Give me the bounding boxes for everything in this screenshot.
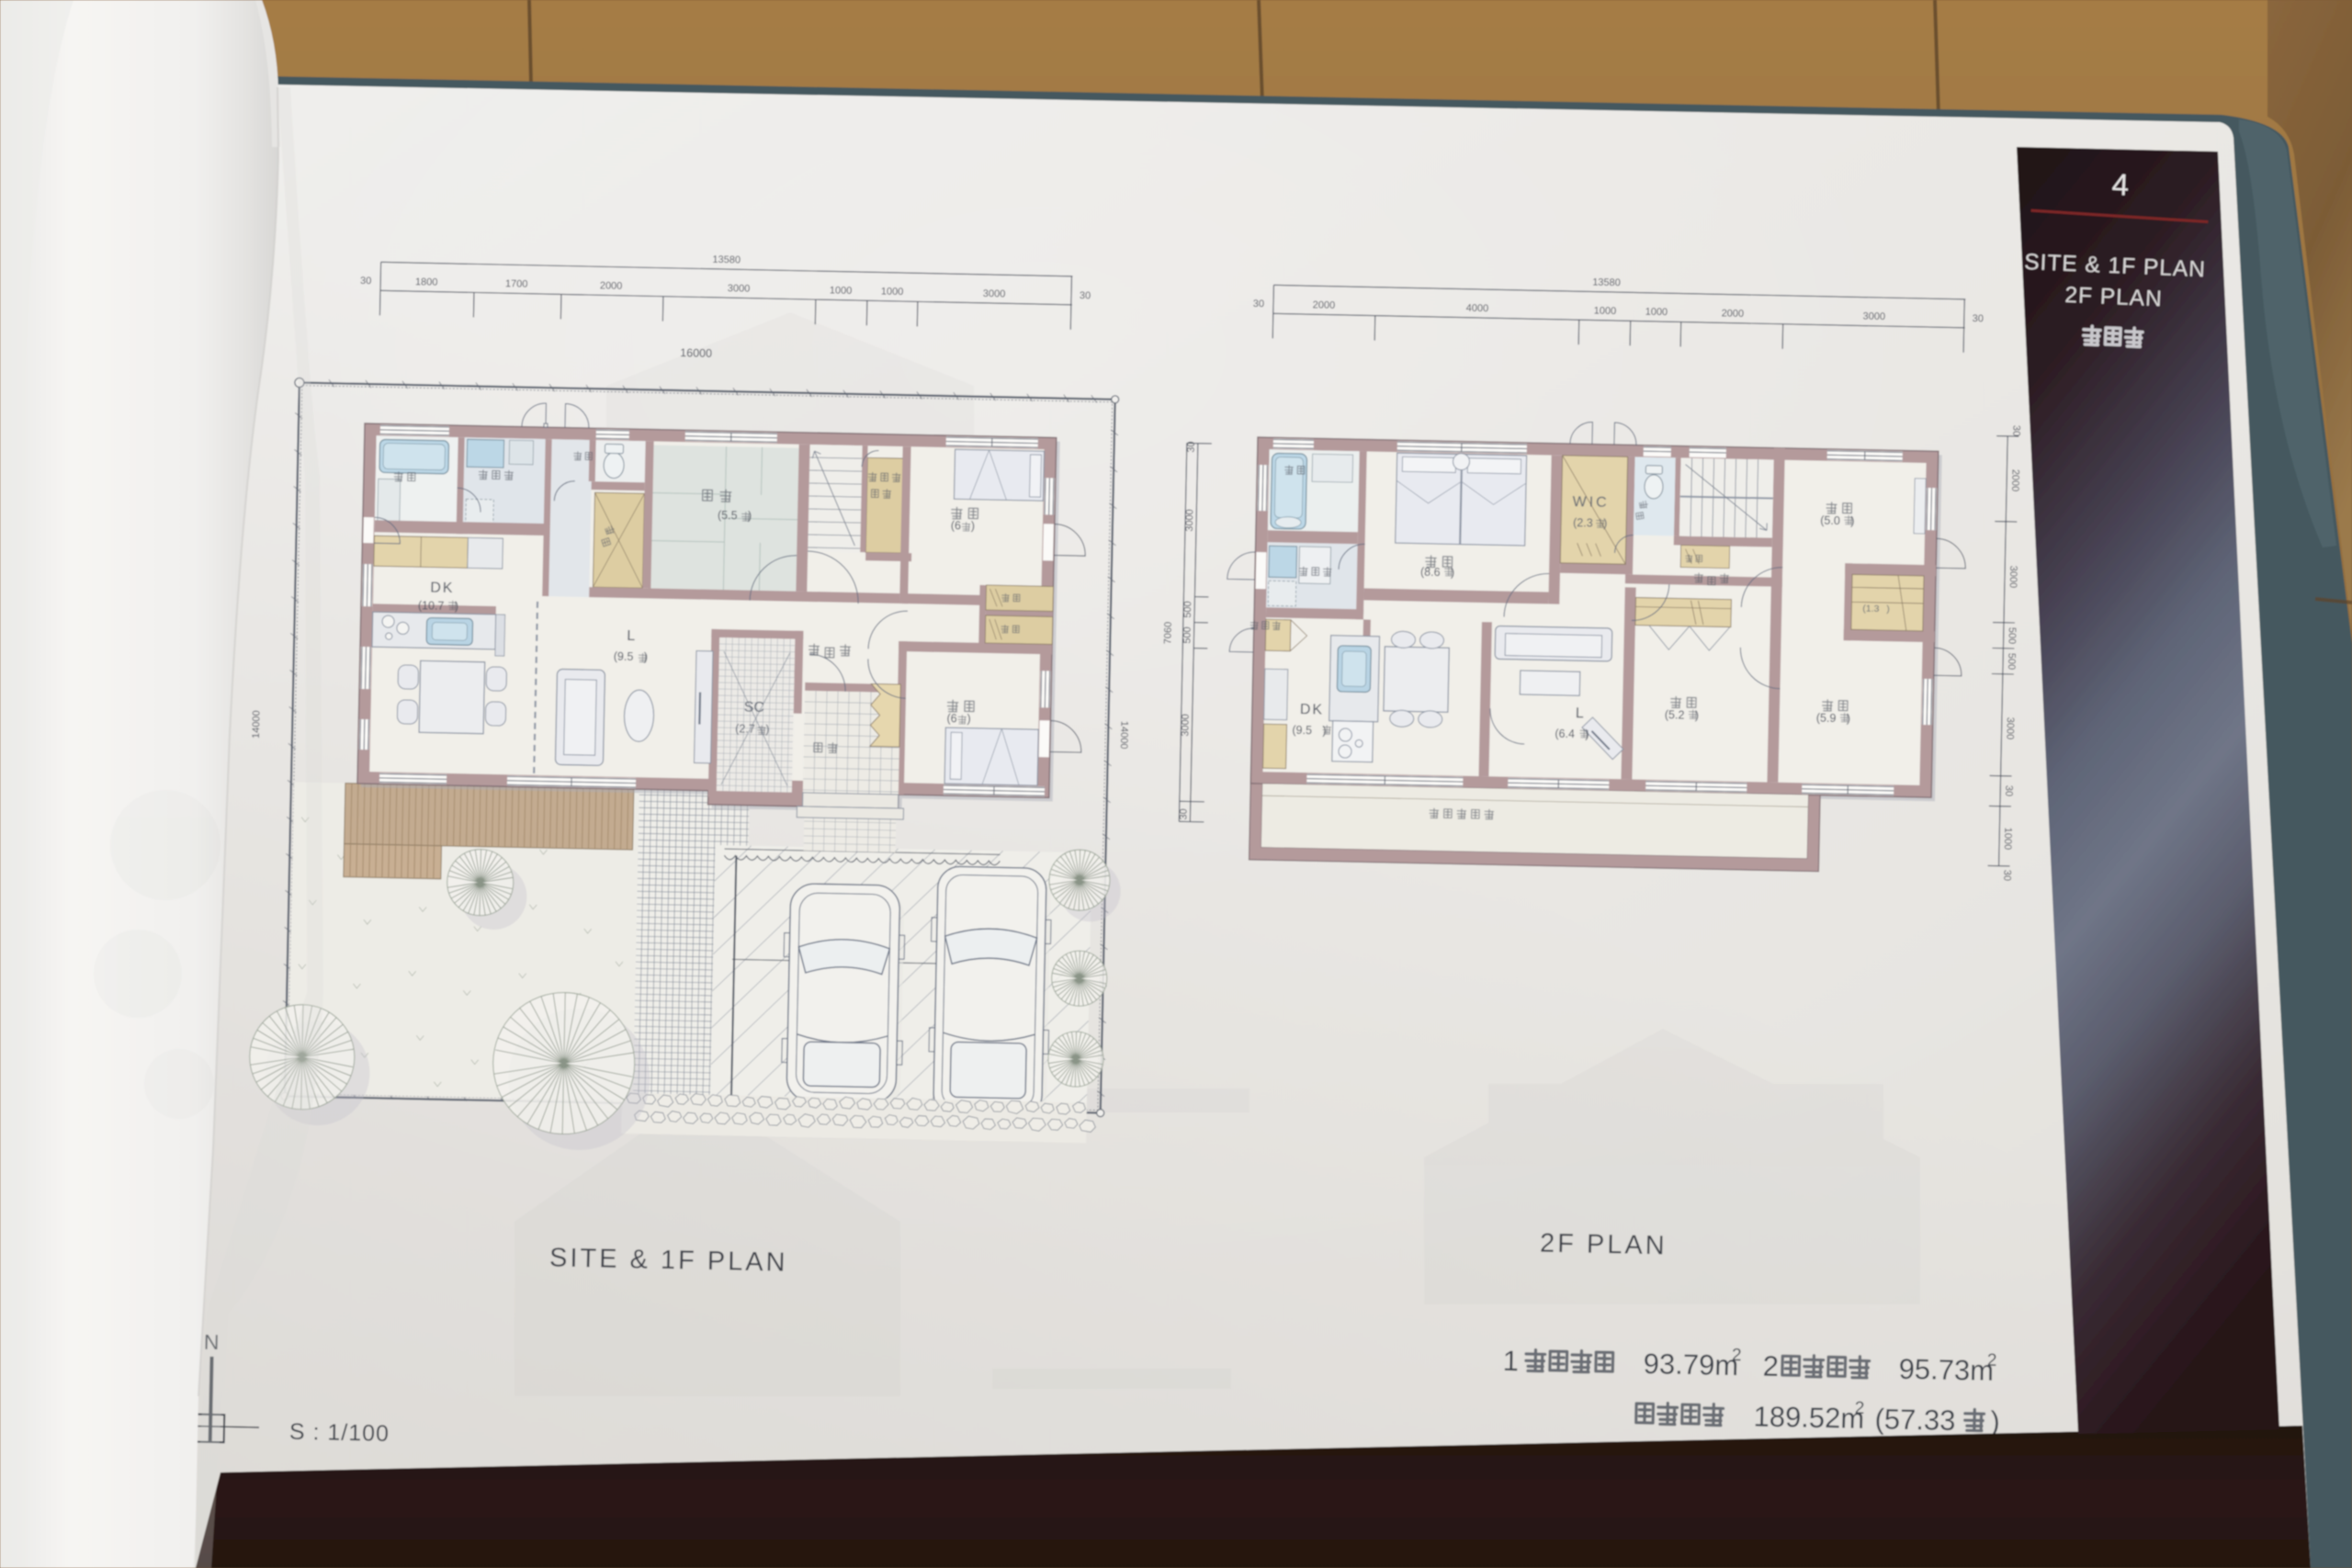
svg-text:(9.5: (9.5 [1292,724,1312,737]
svg-text:4: 4 [2111,167,2130,202]
svg-text:): ) [1990,1405,2000,1438]
svg-text:2F PLAN: 2F PLAN [1540,1229,1668,1261]
svg-text:189.52m: 189.52m [1753,1400,1864,1434]
svg-text:(6.4: (6.4 [1555,728,1575,740]
svg-text:16000: 16000 [680,346,712,360]
svg-text:(5.5: (5.5 [718,509,738,522]
svg-text:WIC: WIC [1572,494,1609,511]
svg-text:95.73m: 95.73m [1898,1353,1994,1387]
svg-text:3000: 3000 [1180,714,1192,737]
svg-text:13580: 13580 [712,254,741,266]
svg-text:(1.3: (1.3 [1862,604,1879,615]
svg-text:(8.6: (8.6 [1420,566,1441,579]
svg-text:2: 2 [1855,1399,1865,1418]
svg-text:30: 30 [2010,425,2021,436]
svg-text:): ) [971,520,975,533]
svg-text:(2.3: (2.3 [1573,516,1593,529]
svg-text:30: 30 [1080,290,1091,301]
svg-text:): ) [1322,725,1326,738]
svg-text:1000: 1000 [2002,828,2014,851]
svg-text:2F PLAN: 2F PLAN [2064,283,2163,312]
svg-text:2: 2 [1762,1350,1779,1382]
svg-text:3000: 3000 [2007,566,2019,589]
svg-text:(5.9: (5.9 [1816,712,1837,725]
svg-text:30: 30 [1253,299,1264,310]
svg-text:2: 2 [1732,1346,1742,1365]
svg-text:): ) [967,713,970,726]
svg-text:DK: DK [1300,702,1325,718]
svg-text:S : 1/100: S : 1/100 [289,1419,390,1447]
svg-text:30: 30 [2001,870,2012,881]
svg-text:(10.7: (10.7 [418,599,445,613]
svg-text:14000: 14000 [1118,721,1130,750]
svg-text:(6: (6 [946,712,956,725]
svg-text:30: 30 [1973,313,1984,324]
svg-text:13580: 13580 [1592,276,1621,288]
svg-text:500: 500 [2007,627,2018,645]
svg-text:14000: 14000 [251,710,263,739]
svg-text:(2.7: (2.7 [735,722,755,735]
svg-text:500: 500 [1182,601,1193,618]
svg-text:30: 30 [1186,441,1197,452]
svg-text:4000: 4000 [1466,303,1489,315]
svg-text:30: 30 [2003,785,2014,796]
svg-text:3000: 3000 [1184,509,1196,532]
svg-text:1800: 1800 [415,276,438,288]
svg-text:2000: 2000 [2009,469,2021,492]
svg-text:500: 500 [1182,626,1193,644]
svg-text:): ) [1886,604,1890,615]
svg-text:1000: 1000 [830,285,853,297]
svg-text:1000: 1000 [881,287,904,299]
svg-text:93.79m: 93.79m [1643,1348,1738,1382]
svg-text:2000: 2000 [1313,299,1336,311]
svg-text:2000: 2000 [1722,308,1745,320]
svg-text:1: 1 [1502,1345,1519,1377]
svg-text:1700: 1700 [505,278,528,290]
svg-text:30: 30 [360,276,371,287]
svg-text:DK: DK [430,581,455,597]
svg-text:2000: 2000 [600,280,623,292]
svg-text:(5.0: (5.0 [1820,514,1840,527]
svg-text:L: L [1576,705,1584,721]
svg-text:3000: 3000 [728,283,751,295]
svg-text:(6: (6 [951,519,961,532]
svg-text:): ) [765,723,769,736]
svg-text:SC: SC [744,700,765,716]
svg-text:7060: 7060 [1162,622,1174,645]
svg-text:(9.5: (9.5 [614,650,634,663]
svg-text:3000: 3000 [2004,717,2016,740]
svg-text:3000: 3000 [1862,311,1885,323]
svg-text:1000: 1000 [1594,306,1617,318]
svg-text:3000: 3000 [983,288,1006,300]
svg-text:(57.33: (57.33 [1874,1403,1956,1437]
svg-text:(5.2: (5.2 [1665,708,1685,721]
svg-text:SITE & 1F PLAN: SITE & 1F PLAN [549,1243,788,1277]
svg-text:30: 30 [1178,808,1189,819]
svg-text:500: 500 [2006,653,2017,671]
svg-text:2: 2 [1987,1351,1997,1371]
svg-text:L: L [627,628,635,644]
svg-text:1000: 1000 [1645,307,1668,319]
